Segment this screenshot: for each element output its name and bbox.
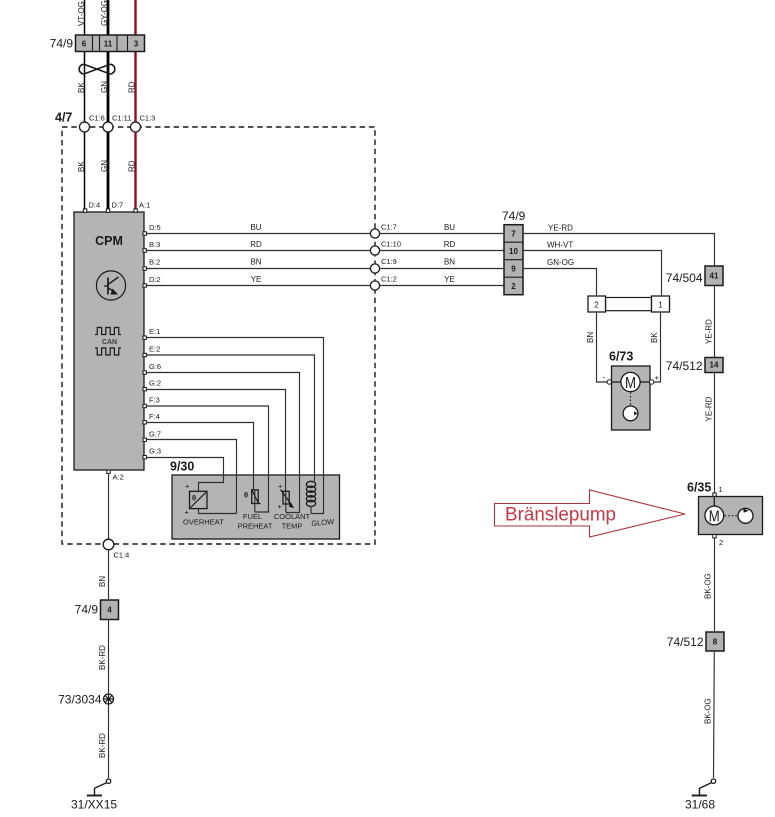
svg-text:74/9: 74/9 [75,603,99,617]
svg-text:1: 1 [719,485,723,494]
svg-text:74/9: 74/9 [502,209,526,223]
svg-text:14: 14 [710,361,719,370]
svg-text:E:2: E:2 [149,345,160,354]
svg-text:+: + [655,374,660,383]
svg-text:Bränslepump: Bränslepump [505,504,616,526]
svg-text:C1:4: C1:4 [114,551,130,560]
svg-text:2: 2 [511,282,516,291]
svg-text:9/30: 9/30 [170,460,194,474]
svg-text:PREHEAT: PREHEAT [238,522,273,531]
svg-text:6/73: 6/73 [609,350,633,364]
svg-text:3: 3 [134,40,139,49]
svg-text:GN-OG: GN-OG [547,258,574,267]
svg-text:M: M [625,375,636,392]
svg-text:BK-RD: BK-RD [98,645,107,670]
svg-text:F:4: F:4 [149,412,160,421]
svg-text:73/3034: 73/3034 [58,693,102,707]
svg-text:B:3: B:3 [149,240,160,249]
svg-text:G:7: G:7 [149,429,161,438]
svg-text:C1:10: C1:10 [381,240,401,249]
svg-text:C1:7: C1:7 [381,223,397,232]
svg-text:BK: BK [77,161,86,172]
svg-text:CAN: CAN [102,339,117,346]
svg-text:BK-OG: BK-OG [704,573,713,599]
svg-text:BK-OG: BK-OG [704,698,713,724]
svg-text:RD: RD [444,240,456,249]
svg-text:OVERHEAT: OVERHEAT [183,518,224,527]
svg-text:G:2: G:2 [149,379,161,388]
svg-text:2: 2 [719,538,723,547]
svg-text:C1:2: C1:2 [381,274,397,283]
svg-text:θ: θ [192,494,196,503]
svg-text:BU: BU [444,223,455,232]
svg-text:BK: BK [650,332,659,343]
svg-text:C1:11: C1:11 [112,114,131,123]
svg-text:M: M [709,508,720,525]
svg-text:D:2: D:2 [149,275,161,284]
svg-text:2: 2 [594,301,599,310]
svg-text:41: 41 [710,272,719,281]
svg-text:BK-RD: BK-RD [98,733,107,758]
svg-text:6/35: 6/35 [687,481,711,495]
svg-text:9: 9 [511,265,516,274]
svg-text:4: 4 [107,606,112,615]
svg-text:74/512: 74/512 [666,359,703,373]
svg-text:C1:6: C1:6 [89,114,105,123]
svg-text:74/504: 74/504 [666,271,703,285]
svg-text:RD: RD [128,81,137,93]
svg-text:A:2: A:2 [113,473,124,482]
svg-text:C1:9: C1:9 [381,257,397,266]
svg-text:B:2: B:2 [149,258,160,267]
svg-text:θ: θ [244,491,248,500]
svg-text:D:5: D:5 [149,223,161,232]
svg-text:7: 7 [511,230,516,239]
svg-text:BN: BN [98,576,107,587]
svg-text:YE-RD: YE-RD [548,224,573,233]
svg-text:GN: GN [100,160,109,172]
svg-text:C1:3: C1:3 [140,114,156,123]
svg-text:8: 8 [713,638,718,647]
svg-text:-: - [603,373,606,382]
svg-text:A:1: A:1 [139,201,150,210]
svg-text:74/9: 74/9 [50,37,74,51]
svg-text:VT-OG: VT-OG [77,1,86,26]
svg-text:31/XX15: 31/XX15 [71,798,117,812]
svg-text:G:3: G:3 [149,447,161,456]
svg-text:D:7: D:7 [112,201,124,210]
svg-text:74/512: 74/512 [667,635,704,649]
svg-text:BN: BN [586,332,595,343]
svg-text:GN: GN [100,81,109,93]
svg-text:E:1: E:1 [149,327,160,336]
svg-text:11: 11 [104,40,113,49]
svg-text:4/7: 4/7 [55,111,72,125]
svg-text:FUEL: FUEL [243,512,262,521]
svg-text:31/68: 31/68 [685,798,715,812]
svg-text:+: + [278,482,283,491]
svg-text:BN: BN [444,258,455,267]
svg-text:TEMP: TEMP [282,522,303,531]
svg-text:G:6: G:6 [149,362,161,371]
svg-text:D:4: D:4 [89,201,101,210]
svg-text:RD: RD [250,240,262,249]
svg-text:BK: BK [77,82,86,93]
svg-text:YE-RD: YE-RD [705,396,714,421]
svg-text:+: + [185,482,190,491]
svg-text:WH-VT: WH-VT [547,241,573,250]
svg-text:YE-RD: YE-RD [705,319,714,344]
svg-text:CPM: CPM [95,234,123,248]
svg-text:BN: BN [250,258,261,267]
svg-text:+: + [185,508,190,517]
svg-text:YE: YE [444,275,455,284]
svg-text:YE: YE [251,275,262,284]
svg-text:10: 10 [509,247,518,256]
svg-text:6: 6 [82,40,87,49]
svg-text:COOLANT: COOLANT [274,512,311,521]
svg-text:F:3: F:3 [149,396,160,405]
svg-text:GY-OG: GY-OG [100,0,109,26]
svg-text:1: 1 [658,301,663,310]
svg-text:RD: RD [128,160,137,172]
svg-text:BU: BU [250,223,261,232]
svg-text:+: + [278,502,283,511]
